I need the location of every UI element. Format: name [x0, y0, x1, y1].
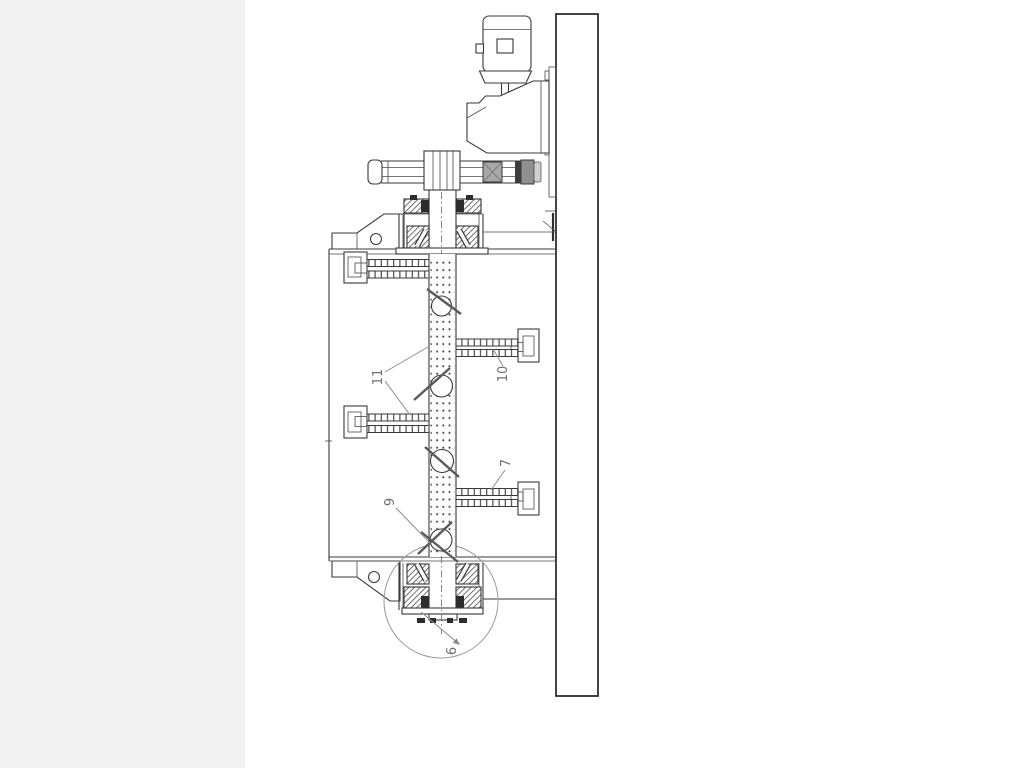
motor-terminal	[476, 44, 484, 53]
part-label-7: 7	[499, 459, 514, 467]
paddle-band-2	[367, 271, 429, 278]
coupling-dark-band	[515, 161, 521, 183]
gusset-hole-bottom	[369, 572, 380, 583]
upper-bearing-assembly	[396, 190, 488, 257]
motor	[476, 16, 532, 96]
coupling-end-cap	[534, 162, 541, 182]
flange-tab-top	[545, 71, 549, 80]
seal-block-right	[456, 596, 464, 608]
leader-7	[491, 470, 505, 490]
technical-drawing: 11 10 7 9 6	[0, 0, 1024, 768]
coupling-gray-block-2	[521, 160, 534, 184]
part-label-6: 6	[445, 647, 460, 655]
seal-block-right	[456, 200, 464, 212]
paddle-arm-lower-right	[456, 482, 539, 515]
anchor-foot-3	[447, 618, 453, 623]
reducer-housing	[467, 81, 549, 153]
paddle-arm-lower-left	[344, 406, 429, 438]
paddle-band-1	[367, 414, 429, 421]
part-label-9: 9	[383, 498, 398, 506]
seal-tab-right	[466, 195, 473, 200]
anchor-foot-1	[417, 618, 425, 623]
left-margin	[0, 0, 245, 768]
paddle-band-2	[456, 350, 518, 357]
seal-block-left	[421, 596, 429, 608]
anchor-foot-4	[459, 618, 467, 623]
seal-block-left	[421, 200, 429, 212]
wall-plate	[556, 14, 598, 696]
coupling-left-cap	[368, 160, 382, 184]
paddle-band-2	[367, 426, 429, 433]
paddle-end-block	[518, 329, 539, 362]
part-label-10: 10	[496, 366, 511, 383]
lower-bearing-assembly	[399, 556, 483, 634]
paddle-end-block	[344, 406, 367, 438]
part-label-11: 11	[371, 369, 386, 386]
leader-9	[396, 508, 430, 543]
shaft-pin-circle-2	[431, 375, 453, 397]
motor-nameplate	[497, 39, 513, 53]
leader-11-a	[385, 347, 428, 372]
paddle-band-1	[456, 489, 518, 496]
seal-tab-left	[410, 195, 417, 200]
coupling-arm	[368, 151, 541, 190]
bearing-base-plate	[402, 608, 483, 614]
wall-flange-plate	[549, 67, 556, 197]
figure-canvas: 11 10 7 9 6	[0, 0, 1024, 768]
gusset-hole-top	[371, 234, 382, 245]
leader-11-b	[385, 381, 410, 415]
paddle-end-block	[518, 482, 539, 515]
bearing-base-plate	[396, 248, 488, 254]
gusset-top-left	[332, 214, 404, 249]
gusset-bottom-left	[332, 561, 400, 601]
paddle-arm-upper-left	[344, 252, 429, 283]
paddle-band-1	[456, 339, 518, 346]
paddle-band-2	[456, 500, 518, 507]
mounting-wall	[545, 14, 598, 696]
agitator-shaft	[414, 254, 461, 562]
gear-reducer	[467, 81, 549, 153]
motor-base-flange	[480, 71, 532, 83]
paddle-band-1	[367, 260, 429, 267]
coupling-hub	[424, 151, 460, 190]
